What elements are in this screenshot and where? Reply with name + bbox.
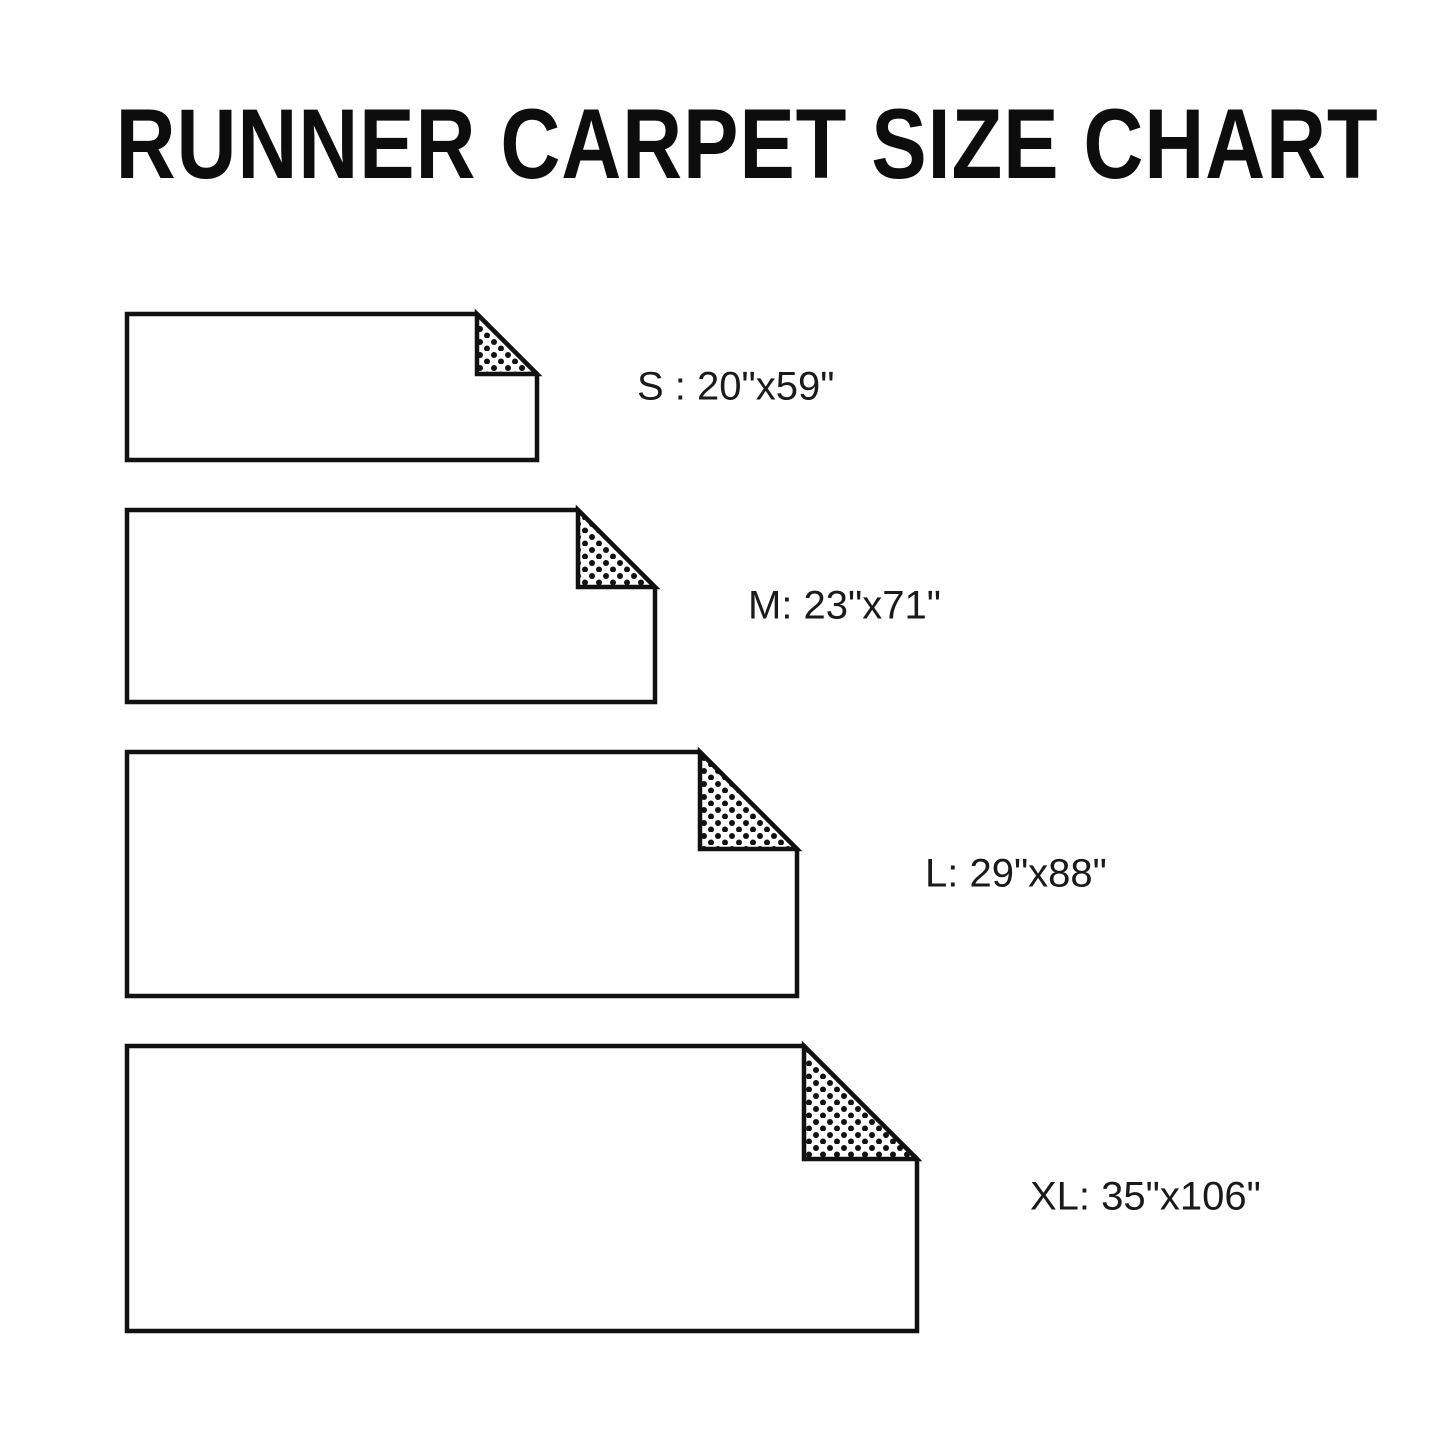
size-label-m: M: 23"x71" xyxy=(748,584,941,629)
size-label-l: L: 29"x88" xyxy=(925,852,1107,897)
carpet-diagram xyxy=(0,0,1445,1445)
runner-carpet-size-chart: RUNNER CARPET SIZE CHART S : 20"x59" M: xyxy=(0,0,1445,1445)
carpet-size-l xyxy=(127,752,797,996)
size-label-s: S : 20"x59" xyxy=(637,365,834,410)
carpet-s-folded-corner xyxy=(477,314,537,374)
carpet-xl-outline xyxy=(127,1046,917,1331)
carpet-size-xl xyxy=(127,1046,917,1331)
carpet-l-folded-corner xyxy=(700,752,797,849)
carpet-size-m xyxy=(127,510,655,702)
carpet-l-outline xyxy=(127,752,797,996)
size-label-xl: XL: 35"x106" xyxy=(1030,1175,1261,1220)
carpet-xl-folded-corner xyxy=(804,1046,917,1159)
carpet-size-s xyxy=(127,314,537,460)
carpet-m-folded-corner xyxy=(578,510,655,587)
